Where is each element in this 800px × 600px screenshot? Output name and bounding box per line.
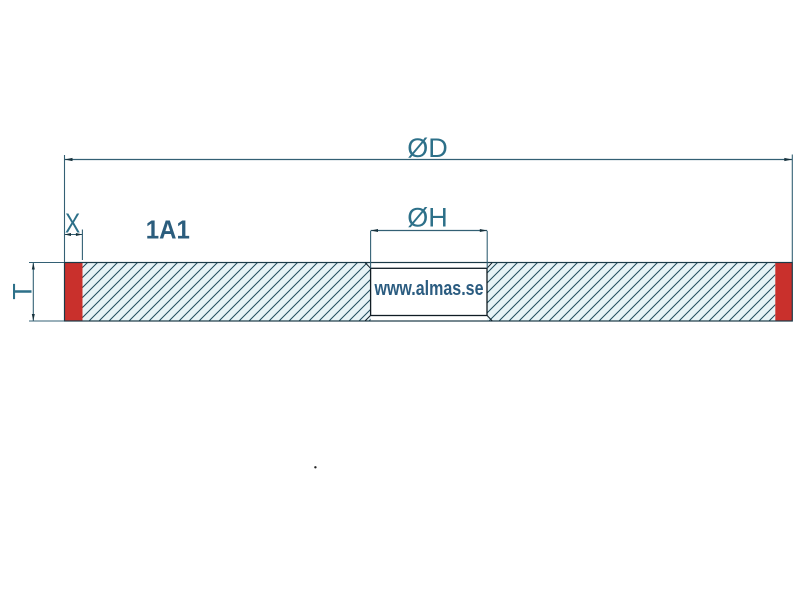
svg-text:ØD: ØD — [407, 133, 448, 163]
svg-text:X: X — [65, 208, 80, 239]
svg-text:www.almas.se: www.almas.se — [374, 278, 484, 300]
svg-text:ØH: ØH — [407, 203, 448, 233]
svg-text:T: T — [8, 283, 38, 300]
svg-text:1A1: 1A1 — [146, 215, 190, 245]
